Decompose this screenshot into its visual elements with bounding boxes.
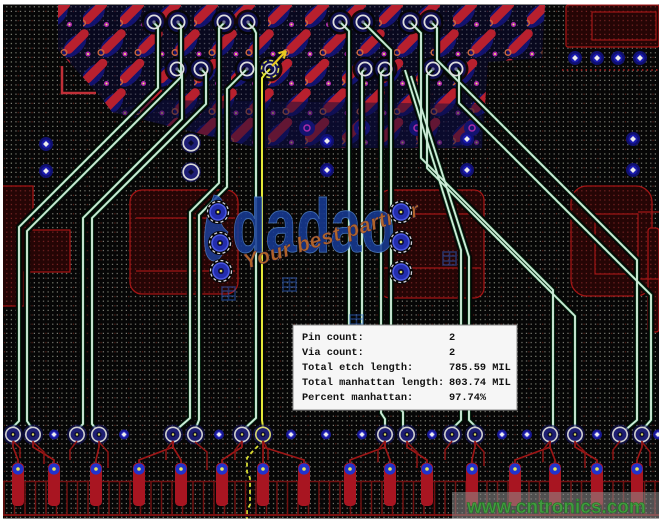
svg-text:803.74 MIL: 803.74 MIL xyxy=(449,377,511,389)
svg-text:785.59 MIL: 785.59 MIL xyxy=(449,362,511,374)
svg-text:Percent manhattan:: Percent manhattan: xyxy=(302,392,413,404)
svg-text:Via count:: Via count: xyxy=(302,347,364,359)
svg-text:Pin count:: Pin count: xyxy=(302,332,364,344)
svg-text:97.74%: 97.74% xyxy=(449,392,487,404)
svg-text:Total manhattan length:: Total manhattan length: xyxy=(302,377,444,389)
svg-text:2: 2 xyxy=(449,347,455,359)
svg-text:2: 2 xyxy=(449,332,455,344)
svg-text:Total etch length:: Total etch length: xyxy=(302,362,413,374)
svg-text:www.cntronics.com: www.cntronics.com xyxy=(466,497,646,518)
